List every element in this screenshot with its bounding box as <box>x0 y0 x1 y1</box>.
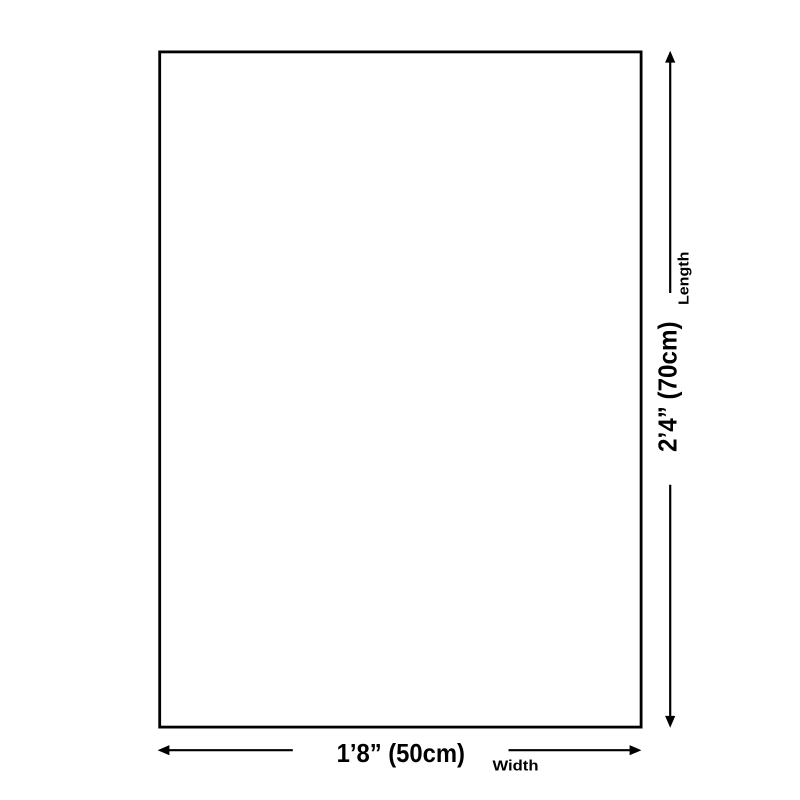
svg-text:Width: Width <box>493 759 539 775</box>
svg-text:Length: Length <box>677 252 693 306</box>
svg-text:1’8” (50cm): 1’8” (50cm) <box>337 738 465 768</box>
svg-text:2’4” (70cm): 2’4” (70cm) <box>653 321 683 452</box>
